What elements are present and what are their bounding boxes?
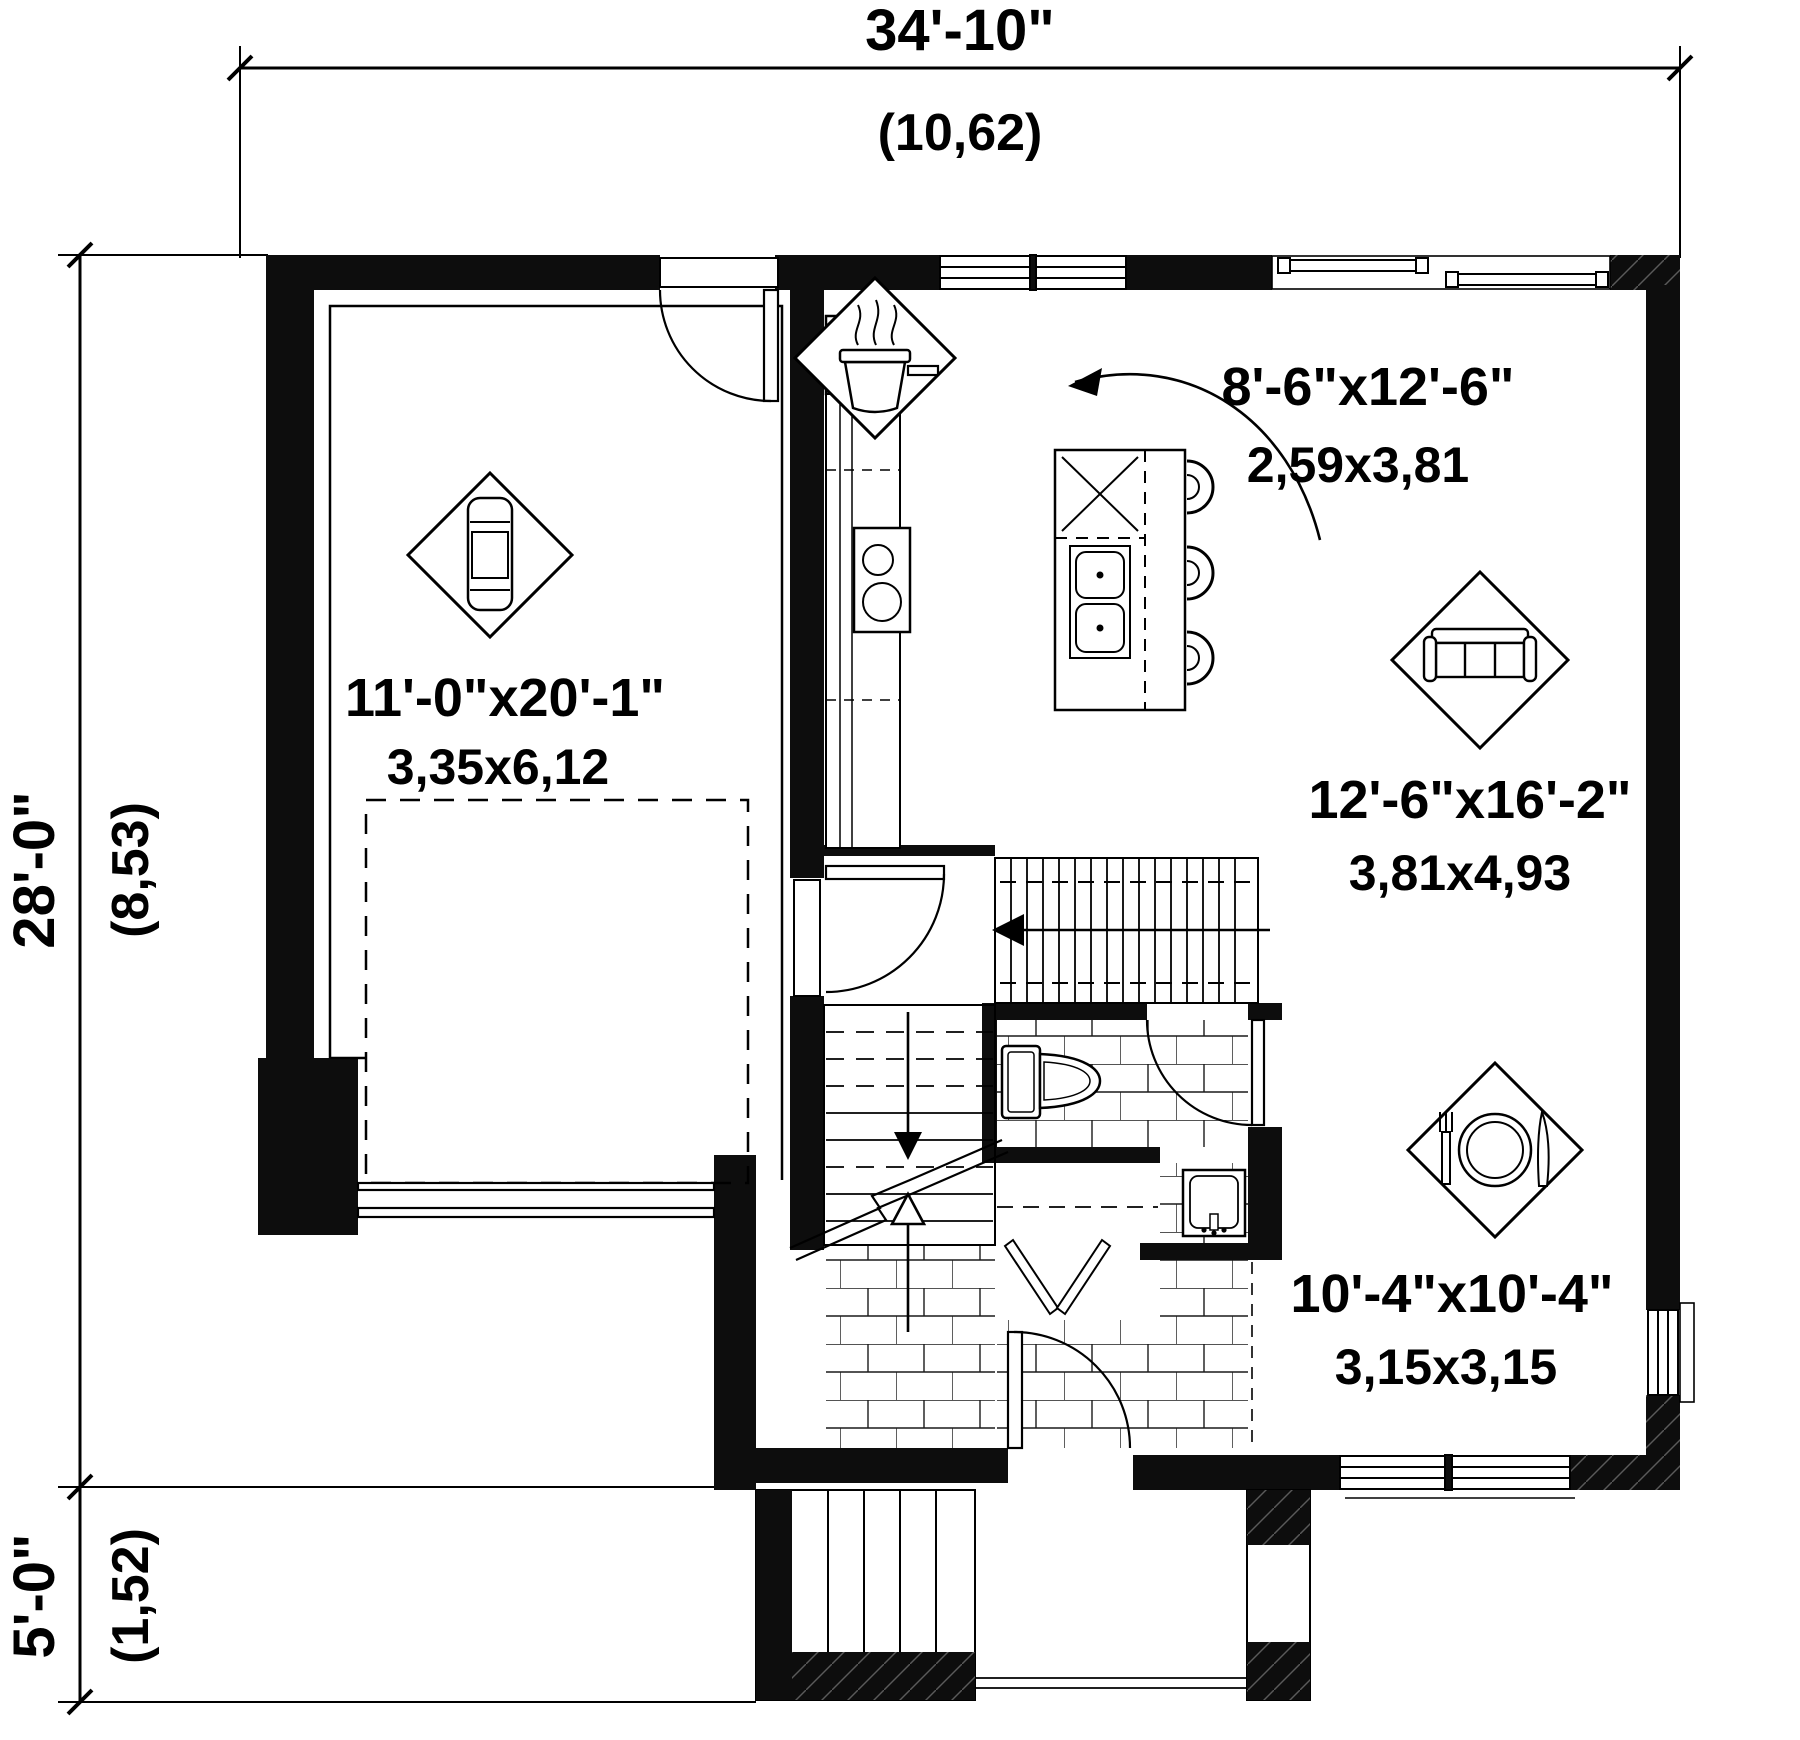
kitchen-size-feet: 8'-6"x12'-6": [1221, 357, 1514, 417]
sofa-icon: [1424, 629, 1536, 681]
living-room: 12'-6"x16'-2" 3,81x4,93: [1308, 572, 1631, 901]
overall-width-feet-label: 34'-10": [865, 0, 1055, 63]
overall-depth-meters-label: (8,53): [102, 802, 160, 938]
overall-depth-feet-label: 28'-0": [2, 791, 67, 948]
car-icon: [468, 498, 512, 610]
bar-stools: [1187, 461, 1213, 684]
dining-side-window: [1648, 1303, 1694, 1402]
dining-size-feet: 10'-4"x10'-4": [1290, 1264, 1613, 1324]
kitchen-island: [1055, 450, 1213, 710]
stairs-up-arrow-icon: [992, 914, 1270, 946]
living-size-meters: 3,81x4,93: [1349, 845, 1571, 901]
terrace-pillar: [1247, 1490, 1310, 1700]
bathroom-sink-icon: [1183, 1170, 1245, 1236]
garage-room: 11'-0"x20'-1" 3,35x6,12: [345, 473, 665, 795]
porch-depth-meters-label: (1,52): [102, 1528, 160, 1664]
closet-rod-icon: [1005, 1240, 1110, 1314]
garage-size-meters: 3,35x6,12: [387, 739, 609, 795]
porch-depth-feet-label: 5'-0": [2, 1533, 67, 1658]
garage-dashed-slab: [366, 800, 748, 1183]
floor-plan-page: 34'-10" (10,62) 28'-0" (8,53) 5'-0" (1,5…: [0, 0, 1800, 1740]
living-sliding-window: [1272, 256, 1610, 289]
dining-room: 10'-4"x10'-4" 3,15x3,15: [1290, 1063, 1613, 1395]
floor-plan-drawing: 34'-10" (10,62) 28'-0" (8,53) 5'-0" (1,5…: [0, 0, 1800, 1740]
kitchen-size-meters: 2,59x3,81: [1247, 437, 1469, 493]
kitchen-window: [940, 255, 1126, 290]
front-porch: [756, 1490, 975, 1700]
stove-icon: [854, 528, 910, 632]
dining-size-meters: 3,15x3,15: [1335, 1339, 1557, 1395]
garage-entry-door: [660, 258, 778, 401]
garage-size-feet: 11'-0"x20'-1": [345, 668, 665, 728]
island-sink-icon: [1070, 546, 1130, 658]
stairs-up: [992, 858, 1270, 1003]
dining-diamond: [1408, 1063, 1582, 1237]
landing-door: [794, 866, 944, 996]
dining-bottom-windows: [1340, 1455, 1575, 1498]
living-size-feet: 12'-6"x16'-2": [1308, 770, 1631, 830]
terrace: [975, 1490, 1310, 1700]
garage-overhead-door: [358, 1183, 714, 1217]
overall-width-meters-label: (10,62): [878, 104, 1043, 162]
